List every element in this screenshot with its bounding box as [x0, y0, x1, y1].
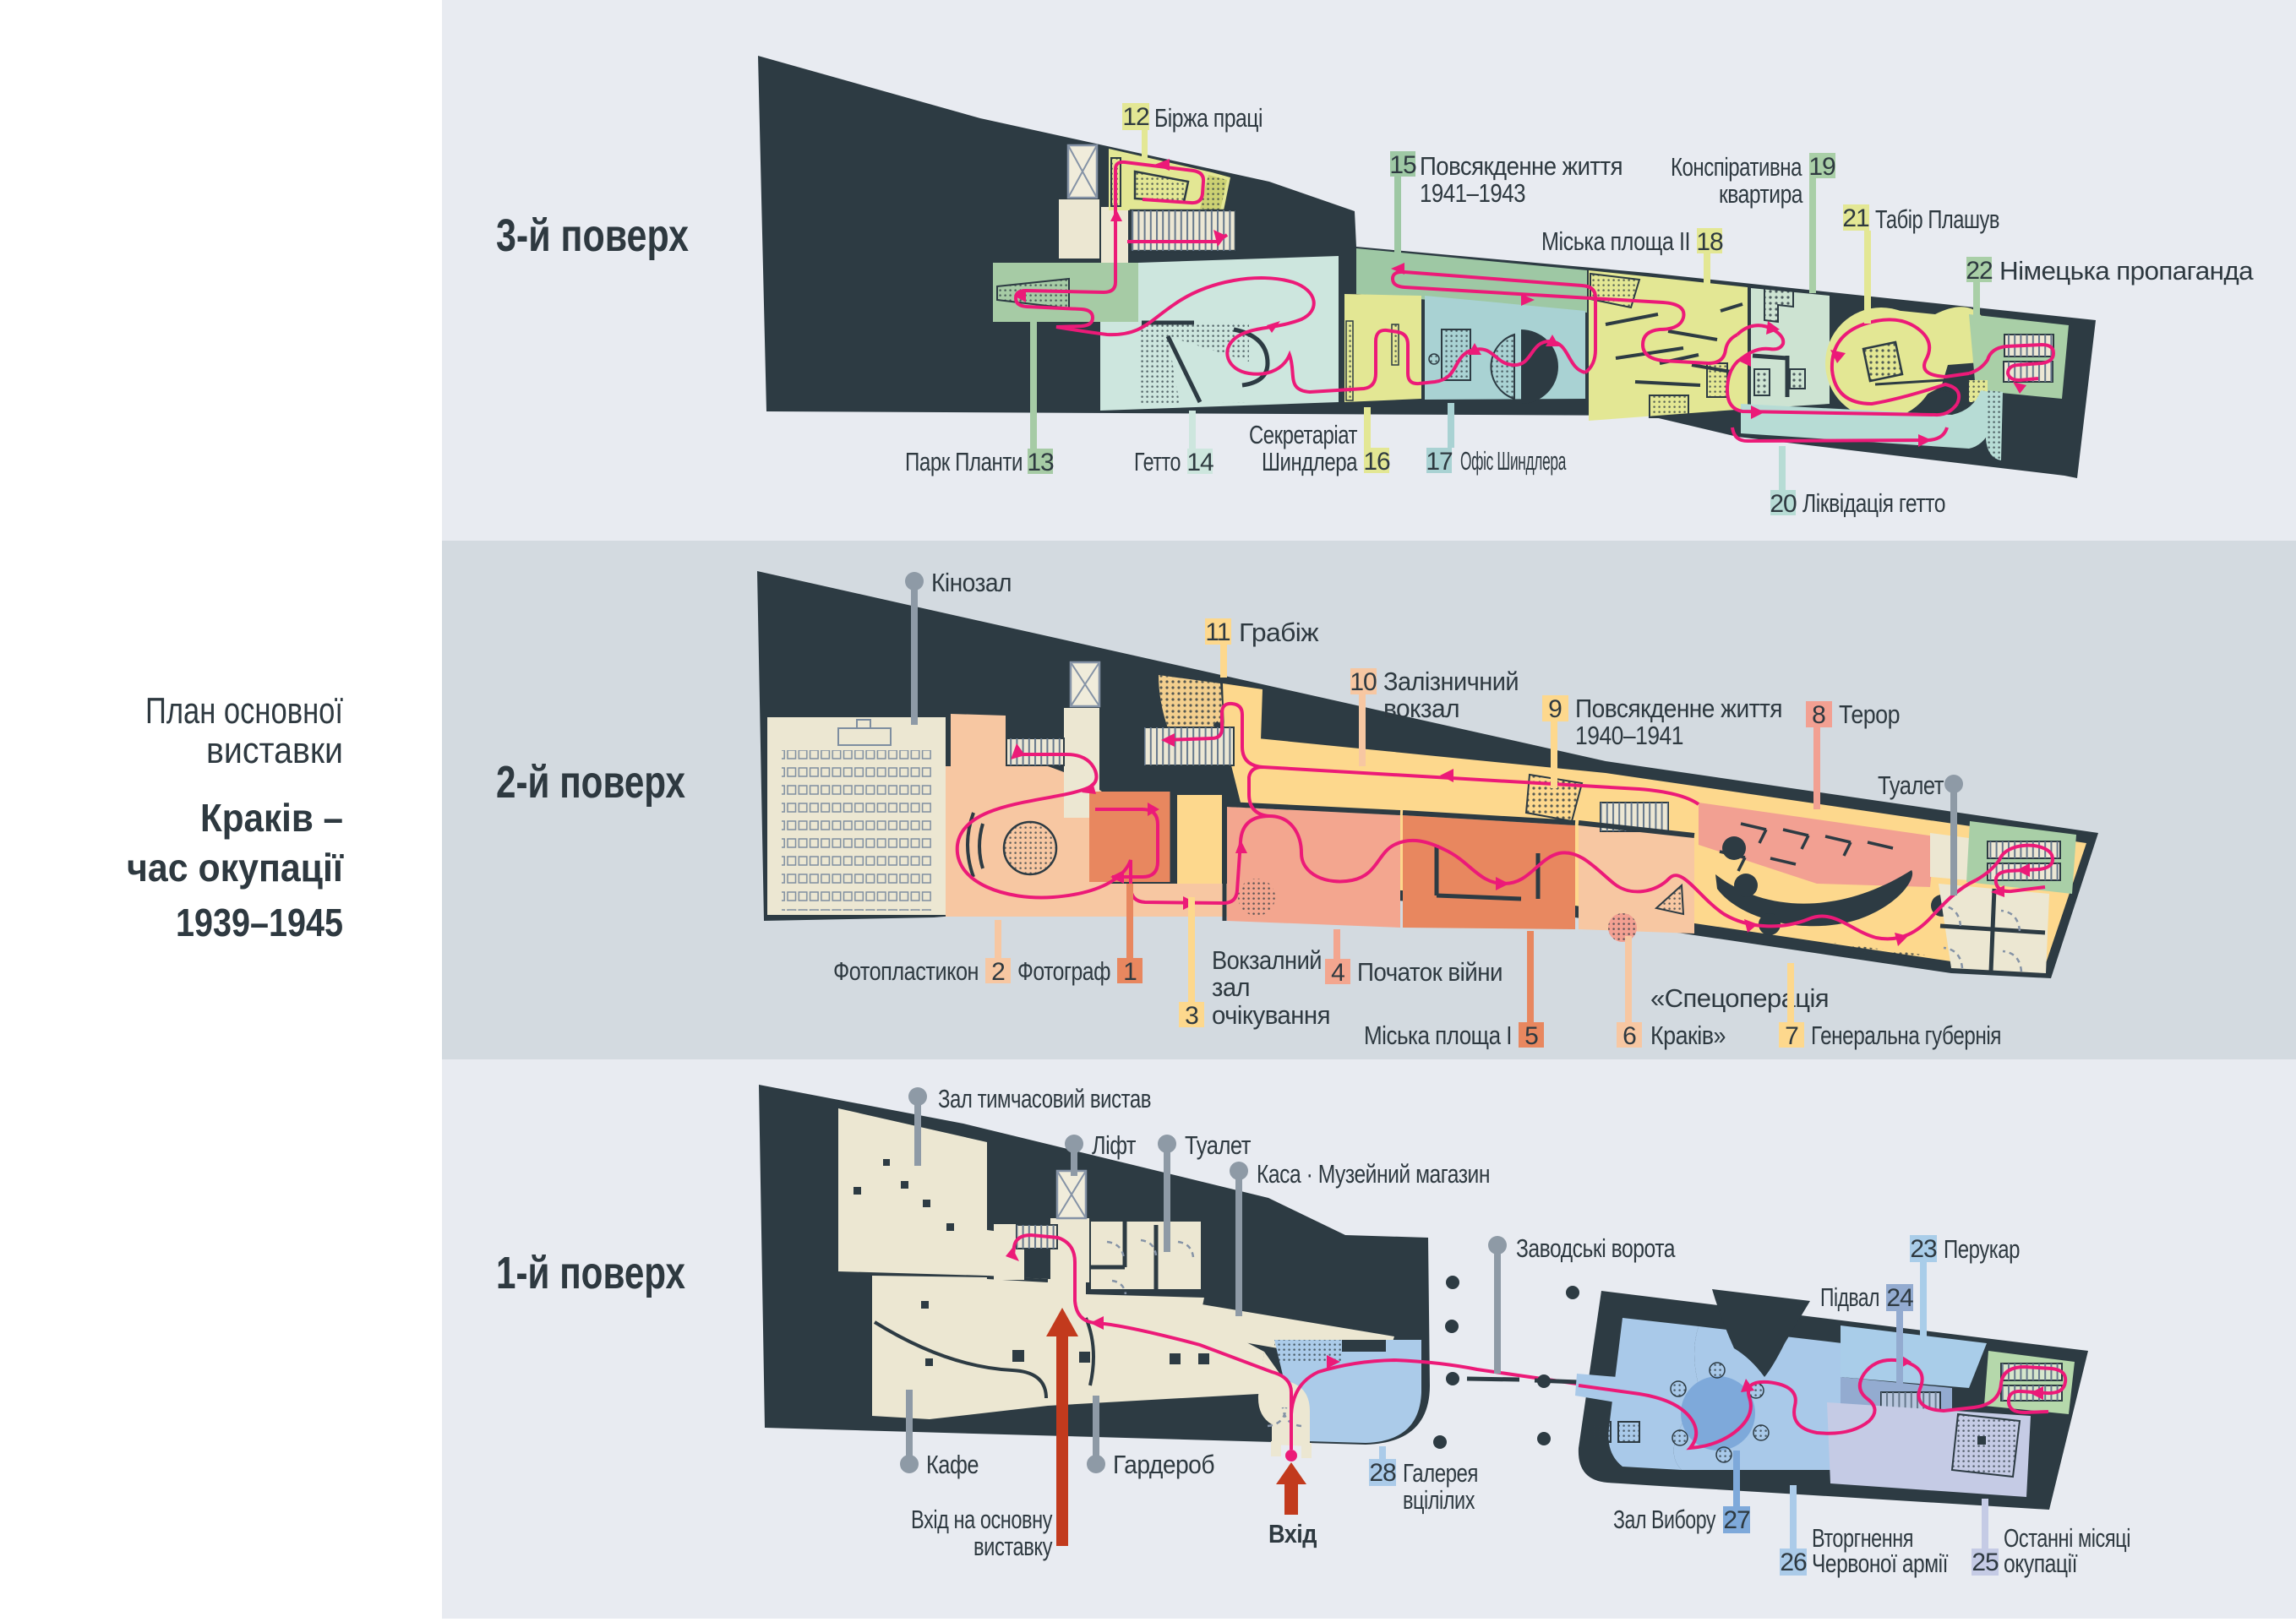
- svg-text:Вхід на основну: Вхід на основну: [911, 1505, 1053, 1534]
- svg-text:2-й поверх: 2-й поверх: [496, 757, 685, 808]
- svg-text:Міська площа I: Міська площа I: [1364, 1021, 1512, 1050]
- svg-text:Початок війни: Початок війни: [1357, 957, 1502, 987]
- svg-text:Ліквідація гетто: Ліквідація гетто: [1802, 488, 1945, 518]
- svg-text:Секретаріат: Секретаріат: [1249, 420, 1357, 449]
- svg-text:9: 9: [1548, 695, 1562, 723]
- svg-text:Краків –: Краків –: [200, 796, 343, 840]
- svg-text:15: 15: [1389, 151, 1416, 179]
- svg-text:3-й поверх: 3-й поверх: [496, 210, 689, 261]
- svg-text:План основної: План основної: [145, 690, 343, 732]
- svg-text:Галерея: Галерея: [1403, 1458, 1478, 1488]
- svg-text:зал: зал: [1212, 972, 1250, 1002]
- svg-text:12: 12: [1122, 103, 1149, 131]
- svg-text:Повсякденне життя: Повсякденне життя: [1420, 151, 1622, 181]
- svg-text:Гардероб: Гардероб: [1113, 1450, 1214, 1479]
- svg-text:1940–1941: 1940–1941: [1575, 721, 1683, 750]
- svg-text:очікування: очікування: [1212, 1000, 1330, 1030]
- svg-text:19: 19: [1808, 153, 1835, 181]
- svg-text:Кінозал: Кінозал: [931, 568, 1012, 597]
- svg-text:Краків»: Краків»: [1650, 1021, 1726, 1050]
- svg-text:18: 18: [1696, 228, 1723, 256]
- svg-text:Зал Вибору: Зал Вибору: [1613, 1505, 1716, 1534]
- svg-text:Підвал: Підвал: [1820, 1282, 1879, 1312]
- svg-text:«Спецоперація: «Спецоперація: [1650, 983, 1829, 1013]
- svg-text:Терор: Терор: [1839, 699, 1900, 729]
- svg-text:час окупації: час окупації: [127, 846, 344, 890]
- svg-text:Фотопластикон: Фотопластикон: [833, 956, 979, 986]
- svg-text:1: 1: [1123, 958, 1137, 986]
- svg-text:Генеральна губернія: Генеральна губернія: [1811, 1021, 2001, 1050]
- svg-text:2: 2: [991, 958, 1005, 986]
- svg-text:Офіс Шиндлера: Офіс Шиндлера: [1460, 446, 1567, 476]
- svg-text:13: 13: [1027, 449, 1054, 476]
- svg-text:окупації: окупації: [2004, 1549, 2078, 1578]
- svg-text:Перукар: Перукар: [1944, 1234, 2020, 1264]
- svg-text:22: 22: [1966, 257, 1993, 285]
- svg-text:Кафе: Кафе: [926, 1450, 979, 1479]
- svg-text:24: 24: [1886, 1284, 1913, 1312]
- svg-text:25: 25: [1972, 1549, 1999, 1576]
- svg-text:Вхід: Вхід: [1268, 1519, 1317, 1549]
- svg-text:Зал тимчасовий вистав: Зал тимчасовий вистав: [938, 1084, 1151, 1113]
- svg-text:Туалет: Туалет: [1878, 770, 1944, 800]
- svg-text:11: 11: [1205, 618, 1230, 646]
- svg-text:Вокзалний: Вокзалний: [1212, 945, 1322, 975]
- svg-text:20: 20: [1770, 490, 1797, 518]
- svg-text:Грабіж: Грабіж: [1239, 618, 1319, 647]
- svg-text:Табір Плашув: Табір Плашув: [1875, 204, 1999, 234]
- svg-text:Ліфт: Ліфт: [1092, 1130, 1136, 1160]
- svg-text:16: 16: [1363, 448, 1390, 476]
- svg-text:8: 8: [1812, 701, 1825, 729]
- svg-text:4: 4: [1331, 959, 1344, 987]
- svg-text:Гетто: Гетто: [1134, 447, 1181, 476]
- svg-text:Повсякденне життя: Повсякденне життя: [1575, 694, 1782, 723]
- svg-text:вцілілих: вцілілих: [1403, 1485, 1475, 1515]
- svg-text:Біржа праці: Біржа праці: [1154, 103, 1263, 133]
- svg-text:28: 28: [1369, 1459, 1396, 1487]
- svg-text:вокзал: вокзал: [1383, 694, 1459, 723]
- svg-text:7: 7: [1785, 1022, 1798, 1050]
- svg-text:Шиндлера: Шиндлера: [1262, 447, 1358, 476]
- svg-text:14: 14: [1186, 449, 1213, 476]
- svg-text:5: 5: [1524, 1022, 1538, 1050]
- svg-text:1941–1943: 1941–1943: [1420, 178, 1525, 208]
- svg-text:виставку: виставку: [973, 1532, 1053, 1561]
- svg-text:1939–1945: 1939–1945: [176, 901, 343, 944]
- svg-text:Червоної армії: Червоної армії: [1812, 1549, 1949, 1578]
- svg-text:квартира: квартира: [1719, 179, 1803, 209]
- svg-text:Міська площа II: Міська площа II: [1541, 226, 1690, 256]
- svg-text:17: 17: [1426, 448, 1453, 476]
- svg-text:Конспіративна: Конспіративна: [1671, 152, 1802, 182]
- svg-text:Туалет: Туалет: [1185, 1130, 1251, 1160]
- svg-text:1-й поверх: 1-й поверх: [496, 1248, 685, 1298]
- svg-text:Каса · Музейний магазин: Каса · Музейний магазин: [1257, 1159, 1490, 1189]
- svg-text:26: 26: [1780, 1549, 1807, 1576]
- svg-text:Заводські ворота: Заводські ворота: [1516, 1233, 1676, 1263]
- svg-text:6: 6: [1622, 1022, 1636, 1050]
- svg-text:Залізничний: Залізничний: [1383, 667, 1519, 696]
- svg-text:21: 21: [1842, 204, 1869, 232]
- svg-text:3: 3: [1185, 1002, 1198, 1030]
- svg-text:Німецька пропаганда: Німецька пропаганда: [1999, 256, 2254, 286]
- svg-text:виставки: виставки: [206, 730, 343, 771]
- svg-text:Парк Планти: Парк Планти: [905, 447, 1023, 476]
- svg-text:Фотограф: Фотограф: [1017, 956, 1110, 986]
- svg-text:10: 10: [1350, 668, 1377, 696]
- svg-text:27: 27: [1723, 1506, 1750, 1534]
- svg-text:23: 23: [1910, 1235, 1937, 1263]
